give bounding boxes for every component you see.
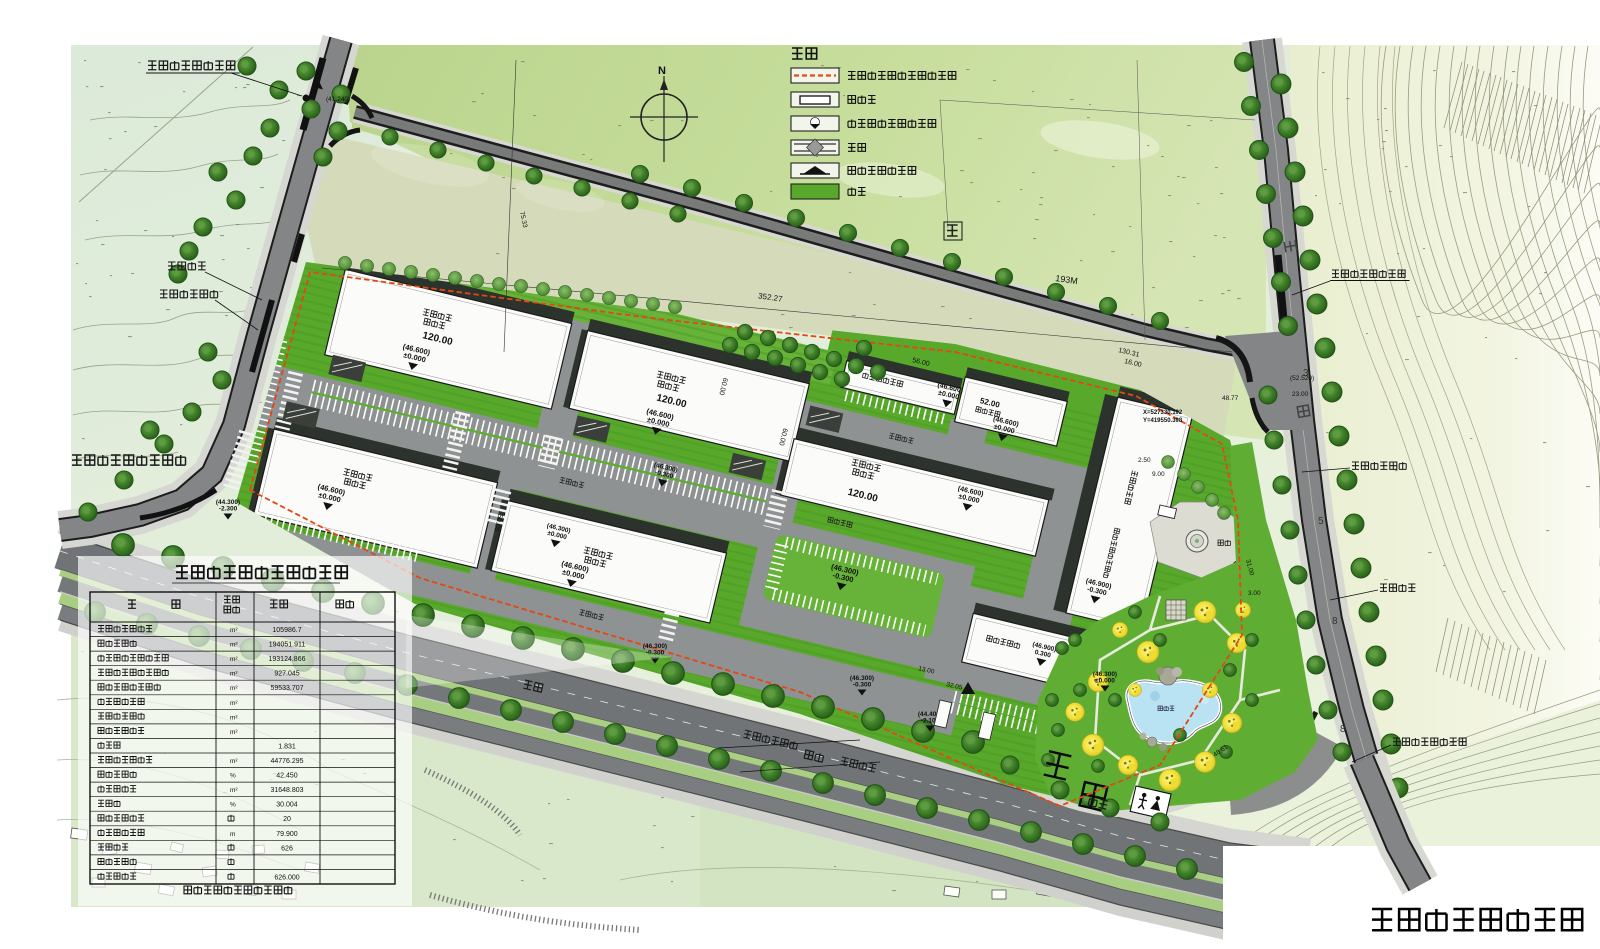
svg-text:626.000: 626.000 bbox=[274, 874, 299, 881]
svg-text:626: 626 bbox=[281, 845, 293, 852]
svg-text:m²: m² bbox=[230, 685, 238, 692]
svg-text:42.450: 42.450 bbox=[276, 773, 298, 780]
svg-text:23.00: 23.00 bbox=[1292, 391, 1309, 398]
svg-text:N: N bbox=[658, 65, 666, 77]
svg-text:Y=419550.398: Y=419550.398 bbox=[1143, 418, 1183, 424]
svg-text:%: % bbox=[230, 802, 236, 809]
svg-text:m²: m² bbox=[230, 656, 238, 663]
svg-text:±0.000: ±0.000 bbox=[1095, 678, 1115, 685]
svg-text:-2.300: -2.300 bbox=[219, 506, 238, 513]
svg-text:m²: m² bbox=[230, 714, 238, 721]
svg-text:44776.295: 44776.295 bbox=[270, 758, 303, 765]
svg-text:m²: m² bbox=[230, 700, 238, 707]
svg-text:m²: m² bbox=[230, 671, 238, 678]
svg-text:2.50: 2.50 bbox=[1138, 457, 1151, 464]
svg-text:79.900: 79.900 bbox=[276, 831, 298, 838]
svg-text:48.77: 48.77 bbox=[1222, 395, 1239, 402]
svg-text:m: m bbox=[230, 831, 235, 838]
svg-text:m²: m² bbox=[230, 642, 238, 649]
svg-text:20: 20 bbox=[283, 816, 291, 823]
svg-text:9.00: 9.00 bbox=[1152, 471, 1165, 478]
svg-text:30.004: 30.004 bbox=[276, 802, 298, 809]
svg-text:105986.7: 105986.7 bbox=[272, 627, 301, 634]
svg-text:(41.240): (41.240) bbox=[326, 96, 350, 103]
svg-text:194051.911: 194051.911 bbox=[269, 642, 306, 649]
svg-text:59533.707: 59533.707 bbox=[270, 685, 303, 692]
svg-text:X=527330.192: X=527330.192 bbox=[1143, 410, 1183, 416]
svg-text:-0.300: -0.300 bbox=[853, 682, 872, 689]
svg-text:3.00: 3.00 bbox=[1248, 590, 1261, 597]
svg-text:m²: m² bbox=[230, 729, 238, 736]
svg-text:1.831: 1.831 bbox=[278, 743, 296, 750]
svg-text:(52.520): (52.520) bbox=[1290, 375, 1314, 382]
svg-text:m²: m² bbox=[230, 627, 238, 634]
svg-text:193124.866: 193124.866 bbox=[269, 656, 306, 663]
svg-text:m²: m² bbox=[230, 758, 238, 765]
svg-text:5: 5 bbox=[1318, 516, 1324, 527]
svg-text:31648.803: 31648.803 bbox=[270, 787, 303, 794]
svg-text:m²: m² bbox=[230, 787, 238, 794]
svg-text:8: 8 bbox=[1340, 724, 1346, 735]
svg-text:927.045: 927.045 bbox=[274, 671, 299, 678]
svg-text:%: % bbox=[230, 773, 236, 780]
svg-text:8: 8 bbox=[1332, 616, 1338, 627]
